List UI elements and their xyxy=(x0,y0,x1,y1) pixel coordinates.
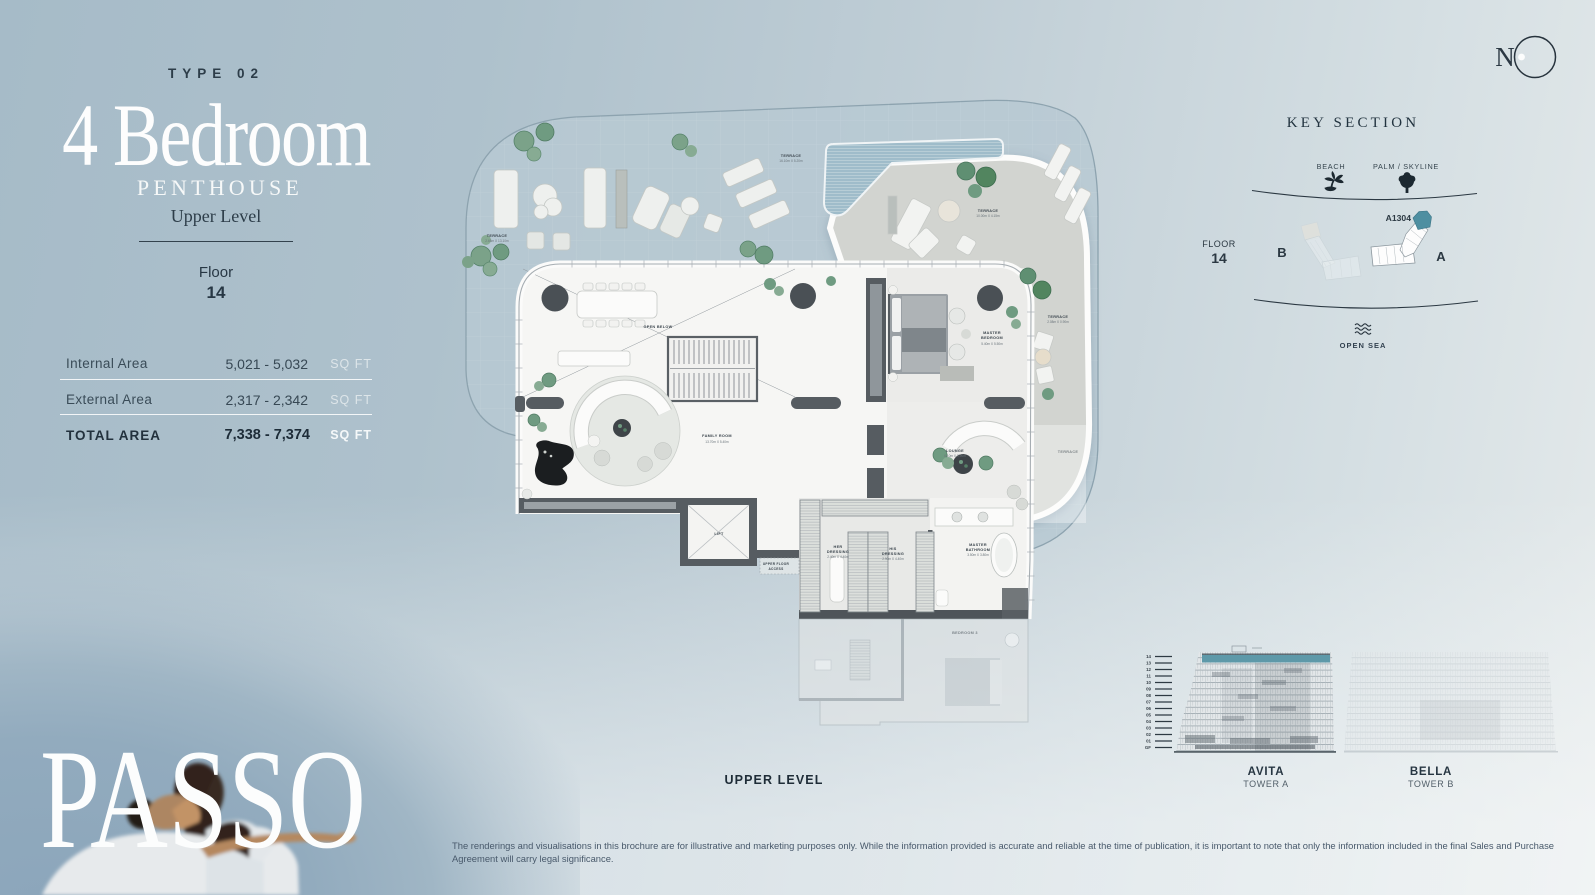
svg-text:2.65m X 13.10m: 2.65m X 13.10m xyxy=(485,239,509,243)
svg-text:A1304: A1304 xyxy=(1386,213,1412,223)
svg-text:OPEN BELOW: OPEN BELOW xyxy=(644,325,673,329)
svg-text:BEACH: BEACH xyxy=(1317,162,1346,171)
svg-text:11: 11 xyxy=(1146,674,1151,679)
svg-text:UPPER FLOOR: UPPER FLOOR xyxy=(763,562,790,566)
svg-text:HIS: HIS xyxy=(889,547,896,551)
svg-text:03: 03 xyxy=(1146,726,1151,731)
svg-text:12: 12 xyxy=(1146,667,1151,672)
svg-text:TOWER B: TOWER B xyxy=(1408,779,1454,789)
svg-text:2.08m X 0.90m: 2.08m X 0.90m xyxy=(1047,320,1069,324)
svg-text:TERRACE: TERRACE xyxy=(978,209,999,213)
svg-text:GF: GF xyxy=(1145,745,1151,750)
svg-text:MASTER: MASTER xyxy=(969,543,987,547)
svg-text:04: 04 xyxy=(1146,719,1151,724)
svg-text:08: 08 xyxy=(1146,693,1151,698)
svg-text:05: 05 xyxy=(1146,713,1151,718)
svg-text:OPEN SEA: OPEN SEA xyxy=(1340,341,1387,350)
svg-text:LOUNGE: LOUNGE xyxy=(946,449,964,453)
svg-text:FLOOR: FLOOR xyxy=(1202,239,1236,249)
svg-text:06: 06 xyxy=(1146,706,1151,711)
svg-text:TERRACE: TERRACE xyxy=(781,154,802,158)
svg-text:10.00m X 4.15m: 10.00m X 4.15m xyxy=(976,214,1000,218)
svg-text:ACCESS: ACCESS xyxy=(768,567,783,571)
svg-text:TERRACE: TERRACE xyxy=(487,234,508,238)
svg-text:6.10m X 3.90m: 6.10m X 3.90m xyxy=(944,454,966,458)
svg-text:2.90m X 4.40m: 2.90m X 4.40m xyxy=(882,557,904,561)
svg-text:TOWER A: TOWER A xyxy=(1243,779,1289,789)
svg-text:PASSO: PASSO xyxy=(40,721,366,879)
svg-text:DRESSING: DRESSING xyxy=(882,552,904,556)
svg-text:HER: HER xyxy=(834,545,843,549)
svg-text:16.10m X 5.20m: 16.10m X 5.20m xyxy=(779,159,803,163)
svg-text:A: A xyxy=(1436,249,1446,264)
svg-text:13.70m X 5.40m: 13.70m X 5.40m xyxy=(705,440,729,444)
svg-text:13: 13 xyxy=(1146,661,1151,666)
svg-text:10: 10 xyxy=(1146,680,1151,685)
svg-text:09: 09 xyxy=(1146,687,1151,692)
svg-text:BEDROOM: BEDROOM xyxy=(981,336,1003,340)
svg-text:BATHROOM: BATHROOM xyxy=(966,548,990,552)
svg-text:MASTER: MASTER xyxy=(983,331,1001,335)
svg-text:BELLA: BELLA xyxy=(1410,766,1452,778)
svg-text:N: N xyxy=(1495,42,1515,72)
svg-text:07: 07 xyxy=(1146,700,1151,705)
svg-text:5.40m X 5.50m: 5.40m X 5.50m xyxy=(981,342,1003,346)
svg-text:3.50m X 3.80m: 3.50m X 3.80m xyxy=(967,553,989,557)
svg-text:2.40m X 4.40m: 2.40m X 4.40m xyxy=(827,555,849,559)
svg-text:B: B xyxy=(1277,245,1286,260)
svg-text:PALM / SKYLINE: PALM / SKYLINE xyxy=(1373,162,1439,171)
svg-text:LIFT: LIFT xyxy=(714,532,724,536)
svg-text:FAMILY ROOM: FAMILY ROOM xyxy=(702,434,732,438)
svg-text:01: 01 xyxy=(1146,739,1151,744)
svg-text:KEY SECTION: KEY SECTION xyxy=(1287,115,1420,131)
svg-text:TERRACE: TERRACE xyxy=(1048,315,1069,319)
svg-text:14: 14 xyxy=(1146,654,1151,659)
svg-text:AVITA: AVITA xyxy=(1248,766,1285,778)
svg-text:DRESSING: DRESSING xyxy=(827,550,849,554)
svg-text:TERRACE: TERRACE xyxy=(1058,450,1079,454)
svg-text:BEDROOM 3: BEDROOM 3 xyxy=(952,631,978,635)
svg-text:02: 02 xyxy=(1146,732,1151,737)
svg-text:14: 14 xyxy=(1211,250,1227,266)
